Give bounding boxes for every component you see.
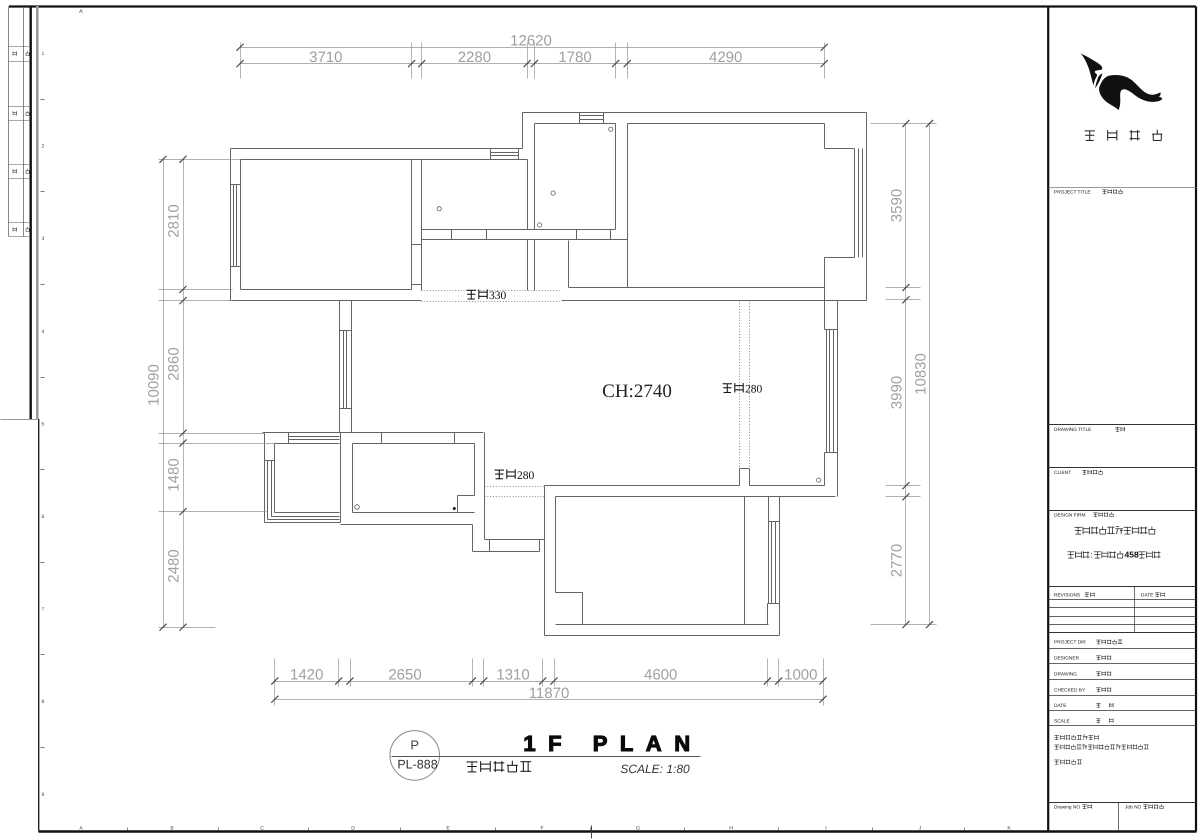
svg-text:1420: 1420	[290, 667, 323, 684]
svg-text:CH:2740: CH:2740	[602, 381, 672, 402]
svg-text:1000: 1000	[784, 667, 817, 684]
svg-text::: :	[1091, 551, 1093, 560]
svg-text:C: C	[260, 826, 264, 832]
svg-text:4: 4	[42, 329, 45, 335]
svg-text:D: D	[351, 826, 355, 832]
svg-text:2280: 2280	[458, 49, 491, 66]
svg-text:2650: 2650	[388, 667, 421, 684]
svg-text:1780: 1780	[558, 49, 591, 66]
svg-text:330: 330	[489, 290, 507, 302]
svg-text:2: 2	[42, 144, 45, 150]
svg-text:Drawing NO: Drawing NO	[1054, 805, 1080, 811]
svg-text:DATE: DATE	[1141, 593, 1153, 599]
svg-text:4290: 4290	[709, 49, 742, 66]
svg-text:1310: 1310	[496, 667, 529, 684]
svg-text:Job NO: Job NO	[1125, 805, 1142, 811]
svg-text:7: 7	[42, 607, 45, 613]
svg-text:3710: 3710	[309, 49, 342, 66]
svg-text:PROJECT DIR: PROJECT DIR	[1054, 640, 1086, 646]
svg-text:REVISIONS: REVISIONS	[1054, 593, 1080, 599]
svg-text:280: 280	[745, 384, 763, 396]
svg-text:2810: 2810	[166, 204, 183, 237]
svg-text:DRAWING: DRAWING	[1054, 672, 1077, 678]
svg-text:10830: 10830	[913, 353, 930, 395]
svg-text:3990: 3990	[889, 376, 906, 409]
svg-text:4600: 4600	[644, 667, 677, 684]
svg-text:G: G	[636, 826, 640, 832]
svg-text:11870: 11870	[529, 685, 570, 702]
svg-text:H: H	[729, 826, 733, 832]
svg-text:DESIGN FIRM: DESIGN FIRM	[1054, 513, 1085, 519]
svg-text:PL-888: PL-888	[397, 758, 437, 772]
svg-text:A: A	[79, 9, 83, 15]
svg-text:3590: 3590	[889, 189, 906, 222]
svg-text:3: 3	[42, 236, 45, 242]
svg-text:6: 6	[42, 514, 45, 520]
svg-text:CLIENT: CLIENT	[1054, 470, 1071, 476]
svg-text:DESIGNER: DESIGNER	[1054, 656, 1080, 662]
svg-text:2860: 2860	[166, 347, 183, 380]
svg-text:CHECKED BY: CHECKED BY	[1054, 688, 1086, 694]
svg-text:I: I	[825, 826, 826, 832]
svg-text:12620: 12620	[510, 33, 552, 50]
svg-text:8: 8	[42, 699, 45, 705]
svg-text:F: F	[540, 826, 543, 832]
svg-text:2480: 2480	[166, 549, 183, 582]
svg-text:280: 280	[517, 470, 535, 482]
svg-text:10090: 10090	[146, 364, 163, 406]
svg-text:458: 458	[1125, 550, 1139, 560]
svg-text:9: 9	[42, 792, 45, 798]
svg-text:1: 1	[42, 51, 45, 57]
svg-text:P: P	[410, 738, 419, 753]
svg-text:1F PLAN: 1F PLAN	[523, 731, 702, 756]
svg-text:1480: 1480	[166, 458, 183, 491]
svg-text:SCALE: SCALE	[1054, 719, 1070, 725]
svg-text:DRAWING TITLE: DRAWING TITLE	[1054, 427, 1091, 433]
svg-text:2770: 2770	[889, 544, 906, 577]
svg-text:5: 5	[42, 421, 45, 427]
svg-text:PROJECT TITLE: PROJECT TITLE	[1054, 190, 1091, 196]
svg-text:SCALE: 1:80: SCALE: 1:80	[620, 762, 690, 776]
svg-text:DATE: DATE	[1054, 703, 1066, 709]
